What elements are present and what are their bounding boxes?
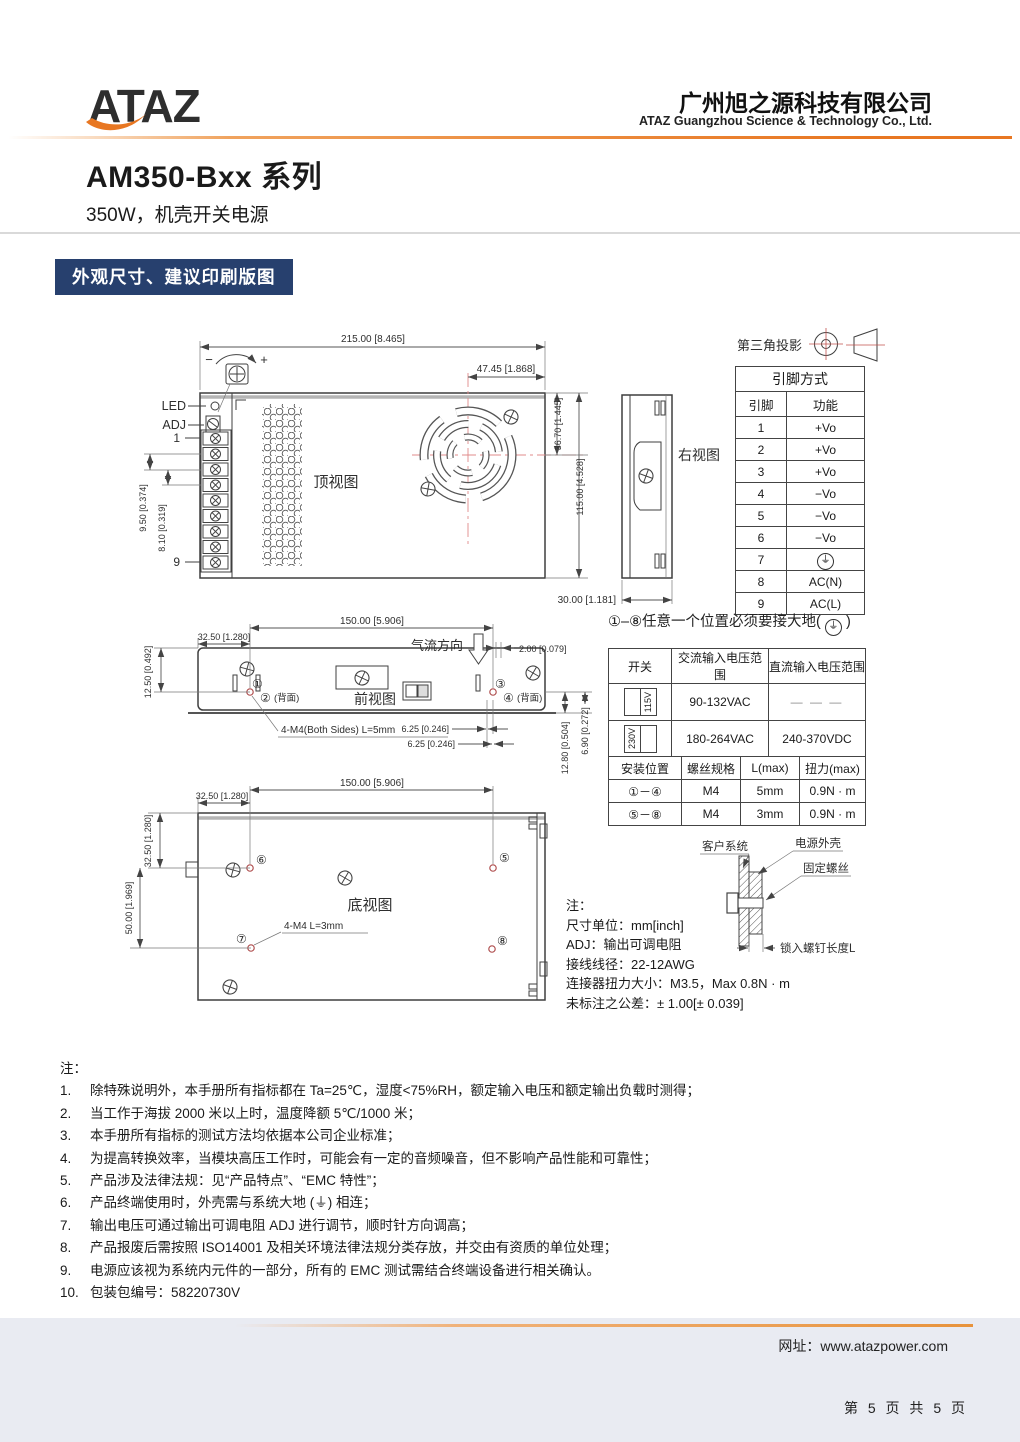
switch-230v-icon: 230V [609, 725, 671, 753]
spec-notes-title: 注： [566, 896, 866, 916]
table-row: 1+Vo [736, 417, 865, 439]
dim-v50: 50.00 [1.969] [124, 882, 134, 935]
notes-list: 注： 1.除特殊说明外，本手册所有指标都在 Ta=25℃，湿度<75%RH，额定… [60, 1058, 972, 1304]
pos-col-header: 安装位置 [609, 757, 682, 780]
projection-circle-icon [809, 328, 843, 360]
power-switch-icon [403, 682, 431, 700]
list-item: 8.产品报废后需按照 ISO14001 及相关环境法律法规分类存放，并交由有资质… [60, 1237, 972, 1259]
switch-115v-icon: 115V [609, 688, 671, 716]
list-item: 5.产品涉及法律法规：见“产品特点”、“EMC 特性”； [60, 1170, 972, 1192]
pin1-label: 1 [173, 431, 180, 445]
dim-fan-x: 47.45 [1.868] [477, 364, 536, 375]
spec-note-line: ADJ：输出可调电阻 [566, 935, 866, 955]
led-label: LED [162, 399, 186, 413]
spec-note-line: 连接器扭力大小：M3.5，Max 0.8N · m [566, 974, 866, 994]
spec-col-header: 螺丝规格 [682, 757, 741, 780]
mount-hole [489, 946, 495, 952]
list-item: 10.包装包编号：58220730V [60, 1282, 972, 1304]
callout-2: ② [260, 691, 271, 705]
func-col-header: 功能 [787, 392, 865, 417]
bottom-view-drawing: ⑥ ⑤ ⑦ ⑧ 150.00 [5.906] 32.50 [1.280] 32.… [124, 778, 547, 1000]
screw-icon [637, 467, 655, 485]
list-item: 7.输出电压可通过输出可调电阻 ADJ 进行调节，顺时针方向调高； [60, 1215, 972, 1237]
callout-2-side: (背面) [274, 692, 299, 704]
spec-note-line: 尺寸单位：mm[inch] [566, 916, 866, 936]
callout-4-side: (背面) [517, 692, 542, 704]
table-row: 115V 90-132VAC — — — [609, 684, 866, 721]
front-view-label: 前视图 [354, 691, 396, 707]
projection-label: 第三角投影 [737, 338, 802, 353]
dim-950: 9.50 [0.374] [138, 484, 148, 532]
website-link[interactable]: 网址：www.atazpower.com [778, 1336, 948, 1356]
table-row: 8AC(N) [736, 571, 865, 593]
customer-system-label: 客户系统 [702, 839, 748, 853]
lmax-col-header: L(max) [741, 757, 800, 780]
ground-icon: ⏚ [825, 619, 842, 636]
spec-note-line: 接线线径：22-12AWG [566, 955, 866, 975]
table-row: 2+Vo [736, 439, 865, 461]
bottom-view-label: 底视图 [347, 897, 392, 914]
footer-divider [235, 1324, 973, 1327]
page-number: 第 5 页 共 5 页 [844, 1398, 968, 1418]
callout-5: ⑤ [499, 851, 510, 865]
table-row: 3+Vo [736, 461, 865, 483]
list-item: 1.除特殊说明外，本手册所有指标都在 Ta=25℃，湿度<75%RH，额定输入电… [60, 1080, 972, 1102]
page-footer: 网址：www.atazpower.com 第 5 页 共 5 页 [0, 1318, 1020, 1442]
third-angle-projection: 第三角投影 [737, 328, 885, 361]
fixing-screw-label: 固定螺丝 [803, 861, 849, 875]
callout-1: ① [252, 677, 263, 691]
psu-case-label: 电源外壳 [795, 836, 841, 850]
callout-7: ⑦ [236, 932, 247, 946]
dim-1280: 12.80 [0.504] [560, 722, 570, 775]
vent-holes [262, 404, 302, 566]
front-view-drawing: ① ② (背面) ③ ④ (背面) 150.00 [5.906] 32.50 [… [143, 616, 592, 774]
callout-4: ④ [503, 691, 514, 705]
dim-690: 6.90 [0.272] [580, 707, 590, 755]
table-row: 7 ⏚ [736, 549, 865, 571]
dim-span: 150.00 [5.906] [340, 616, 404, 627]
pin-col-header: 引脚 [736, 392, 787, 417]
mounting-table: 安装位置 螺丝规格 L(max) 扭力(max) ①－④ M4 5mm 0.9N… [608, 756, 866, 826]
screw-icon [353, 669, 372, 688]
bottom-screw-note: 4-M4 L=3mm [284, 921, 343, 932]
dim-span: 150.00 [5.906] [340, 778, 404, 789]
table-row: 5−Vo [736, 505, 865, 527]
notes-title: 注： [60, 1058, 972, 1080]
table-row: 4−Vo [736, 483, 865, 505]
spec-notes: 注： 尺寸单位：mm[inch] ADJ：输出可调电阻 接线线径：22-12AW… [566, 896, 866, 1013]
list-item: 4.为提高转换效率，当模块高压工作时，可能会有一定的音频噪音，但不影响产品性能和… [60, 1148, 972, 1170]
right-view-label: 右视图 [678, 447, 720, 463]
top-view-drawing: LED ADJ − + 1 9 [138, 334, 588, 578]
torque-col-header: 扭力(max) [800, 757, 866, 780]
dim-edge: 2.00 [0.079] [519, 644, 567, 654]
callout-8: ⑧ [497, 934, 508, 948]
screw-icon [523, 663, 542, 682]
dim-top: 12.50 [0.492] [143, 646, 153, 699]
dim-depth: 30.00 [1.181] [558, 595, 617, 606]
callout-6: ⑥ [256, 853, 267, 867]
front-screw-note: 4-M4(Both Sides) L=5mm [281, 725, 395, 736]
table-row: ①－④ M4 5mm 0.9N · m [609, 780, 866, 803]
dim-width: 215.00 [8.465] [341, 334, 405, 345]
pin-table: 引脚方式 引脚 功能 1+Vo 2+Vo 3+Vo 4−Vo 5−Vo 6−Vo… [735, 366, 865, 615]
led-icon [211, 402, 219, 410]
list-item: 2.当工作于海拔 2000 米以上时，温度降额 5℃/1000 米； [60, 1103, 972, 1125]
screw-icon [221, 978, 239, 996]
ground-note: ①–⑧任意一个位置必须要接大地( ⏚ ) [608, 610, 851, 636]
dim-v325: 32.50 [1.280] [143, 815, 153, 868]
table-row: ⑤－⑧ M4 3mm 0.9N · m [609, 803, 866, 826]
plus-label: + [260, 352, 268, 367]
list-item: 9.电源应该视为系统内元件的一部分，所有的 EMC 测试需结合终端设备进行相关确… [60, 1260, 972, 1282]
dim-625b: 6.25 [0.246] [407, 739, 455, 749]
table-row: 230V 180-264VAC 240-370VDC [609, 721, 866, 758]
projection-cone-icon [846, 329, 885, 361]
top-view-label: 顶视图 [313, 474, 358, 491]
dim-left: 32.50 [1.280] [196, 791, 249, 801]
list-item: 3.本手册所有指标的测试方法均依据本公司企业标准； [60, 1125, 972, 1147]
spec-note-line: 未标注之公差：± 1.00[± 0.039] [566, 994, 866, 1014]
dc-col-header: 直流输入电压范围 [768, 649, 865, 684]
input-voltage-table: 开关 交流输入电压范围 直流输入电压范围 115V 90-132VAC — — … [608, 648, 866, 758]
table-row: 6−Vo [736, 527, 865, 549]
dim-height: 115.00 [4.528] [575, 459, 585, 516]
dim-625a: 6.25 [0.246] [401, 724, 449, 734]
switch-col-header: 开关 [609, 649, 672, 684]
airflow-label: 气流方向 [411, 638, 463, 653]
ac-col-header: 交流输入电压范围 [672, 649, 769, 684]
dim-810: 8.10 [0.319] [157, 504, 167, 552]
screw-icon [238, 660, 255, 677]
list-item: 6.产品终端使用时，外壳需与系统大地 (⏚) 相连； [60, 1192, 972, 1214]
datasheet-page: ATAZ 广州旭之源科技有限公司 ATAZ Guangzhou Science … [0, 0, 1020, 1442]
screw-icon [224, 861, 241, 878]
airflow-arrow-icon [469, 634, 488, 664]
screw-icon [502, 408, 521, 427]
dim-fan-y: 36.70 [1.445] [553, 398, 563, 451]
pin9-label: 9 [173, 555, 180, 569]
screw-icon [335, 868, 354, 887]
mount-hole [490, 865, 496, 871]
pin-table-title: 引脚方式 [736, 367, 865, 392]
adj-label: ADJ [162, 418, 186, 432]
minus-label: − [205, 352, 213, 367]
ground-icon: ⏚ [817, 553, 834, 570]
callout-3: ③ [495, 677, 506, 691]
dim-left: 32.50 [1.280] [198, 632, 251, 642]
technical-drawing: LED ADJ − + 1 9 [0, 0, 1020, 1060]
